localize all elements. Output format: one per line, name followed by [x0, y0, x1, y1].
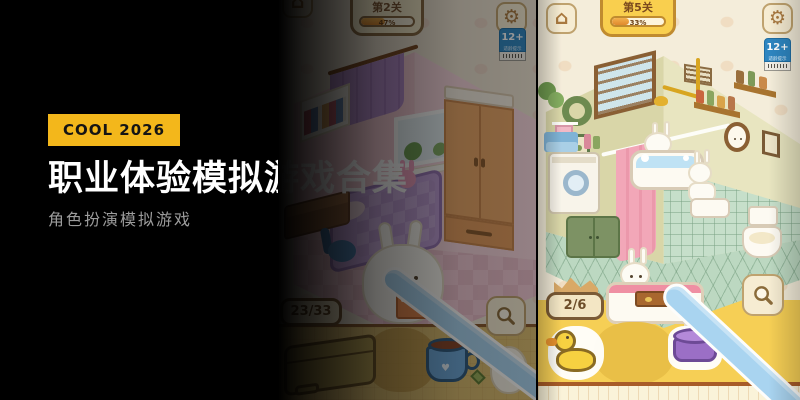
home-icon: ⌂: [282, 0, 313, 18]
magnifier-icon: [742, 274, 784, 316]
page-title: 职业体验模拟游戏合集: [48, 150, 408, 201]
level-badge: 第2关 47%: [350, 0, 424, 36]
hanging-plant-art: [538, 82, 568, 116]
progress-label: 47%: [361, 18, 413, 25]
age-rating-label: 12+: [766, 42, 788, 53]
picture-frame-art: [762, 130, 780, 158]
rating-barcode: [499, 52, 526, 61]
age-rating-label: 12+: [501, 32, 523, 43]
age-rating-note: 适龄提示: [503, 47, 522, 52]
promo-badge: COOL 2026: [48, 114, 180, 146]
rating-barcode: [764, 62, 791, 71]
toilet-art: [742, 206, 782, 260]
cabinet-art: [566, 216, 620, 258]
sink-bunny-art: [688, 158, 732, 220]
screenshot-bathroom: ⌂ 第5关 33% ⚙ 12+ 适龄提示 2/6: [538, 0, 800, 400]
magnifier-icon: [486, 296, 526, 336]
wardrobe-art: [444, 85, 514, 255]
moves-counter: 2/6: [546, 292, 604, 320]
promo-banner[interactable]: COOL 2026 职业体验模拟游戏合集 角色扮演模拟游戏: [0, 0, 800, 400]
moves-counter: 23/33: [280, 298, 342, 326]
home-icon: ⌂: [546, 3, 577, 34]
progress-label: 33%: [612, 18, 664, 25]
stain-art: [594, 322, 674, 384]
chair-art: [322, 226, 362, 270]
level-label: 第2关: [353, 0, 421, 15]
level-label: 第5关: [603, 0, 673, 15]
gear-icon: ⚙: [762, 3, 793, 34]
rubber-duck-item: [548, 326, 604, 380]
age-rating-note: 适龄提示: [768, 57, 787, 62]
page-subtitle: 角色扮演模拟游戏: [48, 206, 192, 230]
age-rating-badge: 12+ 适龄提示: [764, 38, 791, 71]
age-rating-badge: 12+ 适龄提示: [499, 28, 526, 61]
mirror-art: [724, 122, 750, 152]
level-badge: 第5关 33%: [600, 0, 676, 37]
washing-machine-art: [544, 130, 606, 216]
